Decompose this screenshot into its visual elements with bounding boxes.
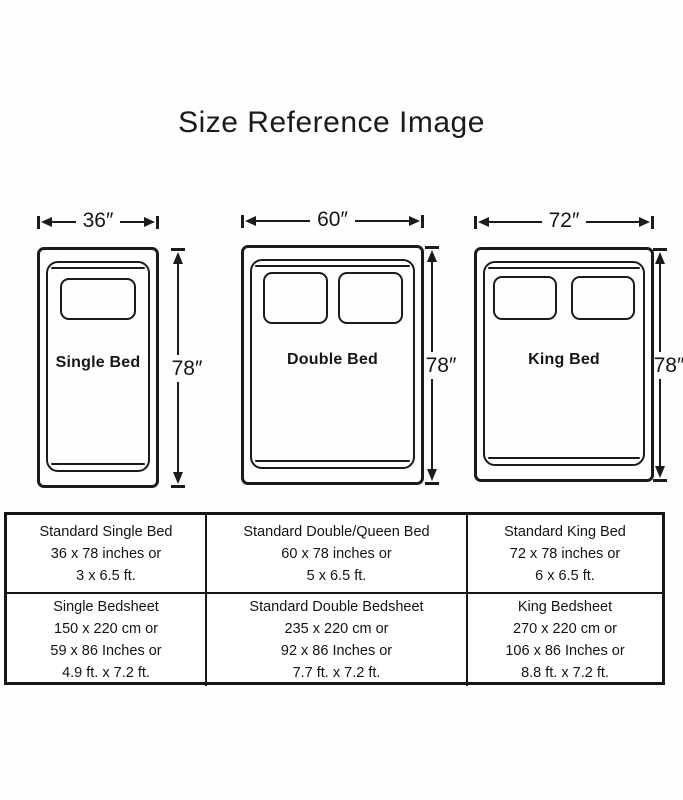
height-label-single: 78″: [172, 355, 203, 382]
dimension-tick: [37, 216, 40, 229]
dimension-line: [177, 264, 180, 355]
width-label-double: 60″: [310, 209, 355, 230]
blanket-line: [255, 460, 410, 462]
dimension-tick: [171, 485, 185, 488]
arrowhead-left-icon: [245, 216, 256, 226]
width-dimension-arrow-king: 72″: [474, 213, 654, 231]
dimension-line: [256, 220, 310, 223]
arrowhead-down-icon: [655, 466, 665, 478]
table-cell-king-bedsheet: King Bedsheet 270 x 220 cm or 106 x 86 I…: [468, 594, 662, 686]
blanket-line: [488, 267, 640, 269]
dimension-line: [489, 221, 542, 224]
table-cell-standard-single-bed: Standard Single Bed 36 x 78 inches or 3 …: [7, 515, 207, 594]
arrowhead-up-icon: [427, 250, 437, 262]
dimension-tick: [425, 246, 439, 249]
cell-line: 72 x 78 inches or: [510, 543, 620, 565]
pillow: [60, 278, 136, 320]
table-cell-standard-double-queen-bed: Standard Double/Queen Bed 60 x 78 inches…: [207, 515, 468, 594]
width-label-king: 72″: [542, 210, 587, 231]
height-label-king: 78″: [654, 352, 683, 379]
table-cell-standard-king-bed: Standard King Bed 72 x 78 inches or 6 x …: [468, 515, 662, 594]
cell-line: 270 x 220 cm or: [513, 618, 617, 640]
cell-line: 8.8 ft. x 7.2 ft.: [521, 662, 609, 684]
cell-line: 7.7 ft. x 7.2 ft.: [293, 662, 381, 684]
width-dimension-arrow-double: 60″: [241, 212, 424, 230]
dimension-tick: [171, 248, 185, 251]
cell-line: 235 x 220 cm or: [285, 618, 389, 640]
dimension-tick: [653, 479, 667, 482]
cell-line: 5 x 6.5 ft.: [307, 565, 367, 587]
dimension-line: [120, 221, 144, 224]
table-cell-standard-double-bedsheet: Standard Double Bedsheet 235 x 220 cm or…: [207, 594, 468, 686]
dimension-tick: [425, 482, 439, 485]
blanket-line: [51, 267, 145, 269]
dimension-line: [659, 379, 662, 467]
cell-line: 92 x 86 Inches or: [281, 640, 392, 662]
width-dimension-arrow-single: 36″: [37, 213, 159, 231]
dimension-tick: [651, 216, 654, 229]
arrowhead-left-icon: [478, 217, 489, 227]
pillow-row: [477, 276, 651, 320]
height-dimension-arrow-double: 78″: [409, 246, 455, 485]
size-specification-table: Standard Single Bed 36 x 78 inches or 3 …: [4, 512, 665, 685]
pillow: [493, 276, 557, 320]
dimension-tick: [421, 215, 424, 228]
double-bed-label: Double Bed: [244, 351, 421, 369]
pillow-row: [244, 272, 421, 324]
cell-line: 60 x 78 inches or: [281, 543, 391, 565]
cell-line: Standard King Bed: [504, 521, 626, 543]
cell-line: 36 x 78 inches or: [51, 543, 161, 565]
arrowhead-down-icon: [173, 472, 183, 484]
dimension-tick: [241, 215, 244, 228]
height-label-double: 78″: [426, 352, 457, 379]
blanket-line: [488, 457, 640, 459]
arrowhead-up-icon: [655, 252, 665, 264]
king-bed-label: King Bed: [477, 351, 651, 369]
cell-line: Standard Double/Queen Bed: [243, 521, 429, 543]
blanket-line: [51, 463, 145, 465]
blanket-line: [255, 265, 410, 267]
cell-line: Standard Double Bedsheet: [249, 596, 423, 618]
dimension-line: [586, 221, 639, 224]
size-reference-image: Size Reference Image 36″ Single Bed 78″: [0, 0, 683, 800]
pillow: [571, 276, 635, 320]
cell-line: 4.9 ft. x 7.2 ft.: [62, 662, 150, 684]
dimension-tick: [474, 216, 477, 229]
height-dimension-arrow-king: 78″: [637, 248, 683, 482]
cell-line: Standard Single Bed: [39, 521, 172, 543]
cell-line: 59 x 86 Inches or: [50, 640, 161, 662]
arrowhead-right-icon: [144, 217, 155, 227]
dimension-line: [431, 262, 434, 352]
single-bed-figure: Single Bed: [37, 247, 159, 488]
cell-line: 106 x 86 Inches or: [505, 640, 624, 662]
pillow: [263, 272, 328, 324]
dimension-line: [659, 264, 662, 352]
cell-line: 3 x 6.5 ft.: [76, 565, 136, 587]
arrowhead-right-icon: [409, 216, 420, 226]
arrowhead-left-icon: [41, 217, 52, 227]
dimension-tick: [156, 216, 159, 229]
pillow-row: [40, 278, 156, 320]
dimension-tick: [653, 248, 667, 251]
table-cell-single-bedsheet: Single Bedsheet 150 x 220 cm or 59 x 86 …: [7, 594, 207, 686]
width-label-single: 36″: [76, 210, 121, 231]
single-bed-label: Single Bed: [40, 354, 156, 372]
double-bed-figure: Double Bed: [241, 245, 424, 485]
dimension-line: [355, 220, 409, 223]
cell-line: 6 x 6.5 ft.: [535, 565, 595, 587]
pillow: [338, 272, 403, 324]
arrowhead-up-icon: [173, 252, 183, 264]
arrowhead-down-icon: [427, 469, 437, 481]
cell-line: King Bedsheet: [518, 596, 612, 618]
dimension-line: [52, 221, 76, 224]
arrowhead-right-icon: [639, 217, 650, 227]
cell-line: 150 x 220 cm or: [54, 618, 158, 640]
cell-line: Single Bedsheet: [53, 596, 159, 618]
king-bed-figure: King Bed: [474, 247, 654, 482]
height-dimension-arrow-single: 78″: [155, 248, 201, 488]
dimension-line: [431, 379, 434, 469]
dimension-line: [177, 382, 180, 473]
page-title: Size Reference Image: [0, 106, 663, 140]
